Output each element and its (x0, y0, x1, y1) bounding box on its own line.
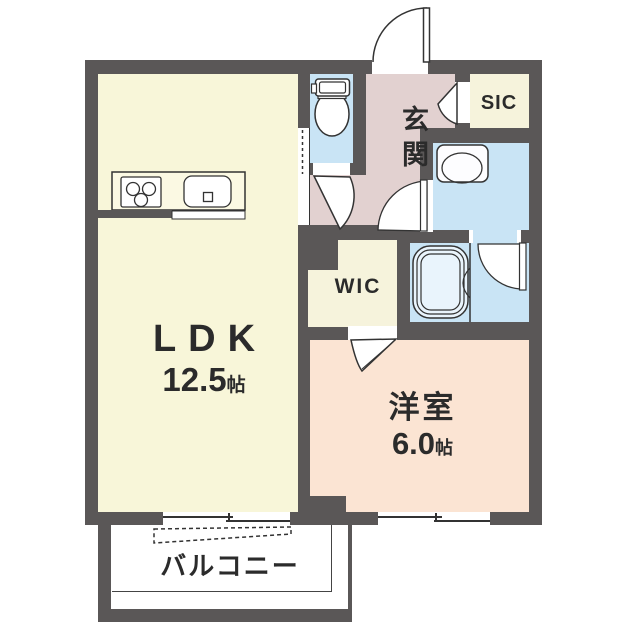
ldk-label: LDK (98, 320, 310, 360)
entrance-doorway (372, 60, 428, 74)
room-washroom-doorway (473, 230, 517, 243)
entrance-door-icon (373, 8, 430, 62)
wic-label: WIC (318, 276, 398, 298)
wic-doorway (348, 326, 397, 340)
bath-door-jamb-left (469, 230, 473, 243)
bath-door-jamb-right (517, 230, 521, 243)
entrance-label: 玄関 (393, 90, 427, 190)
room-washroom (433, 143, 529, 230)
western-room-label: 洋室 (330, 392, 515, 425)
ldk-sliding-doorway (298, 128, 310, 225)
room-bath (410, 243, 529, 322)
balcony-label: バルコニー (130, 553, 330, 580)
ldk-name: LDK (153, 318, 267, 360)
western-window-opening (378, 512, 490, 525)
floor-plan: LDK 12.5帖 洋室 6.0帖 玄関 SIC WIC バルコニー (0, 0, 640, 640)
sic-label: SIC (468, 93, 530, 114)
toilet-doorway (313, 163, 350, 175)
room-ldk (98, 74, 298, 512)
room-wic-upper (338, 240, 397, 270)
ldk-area: 12.5帖 (98, 363, 310, 398)
western-room-step-wall (310, 496, 346, 513)
ldk-window-opening (163, 512, 290, 525)
room-toilet (310, 74, 353, 163)
western-room-area: 6.0帖 (330, 428, 515, 461)
room-hallway-low (310, 175, 366, 225)
